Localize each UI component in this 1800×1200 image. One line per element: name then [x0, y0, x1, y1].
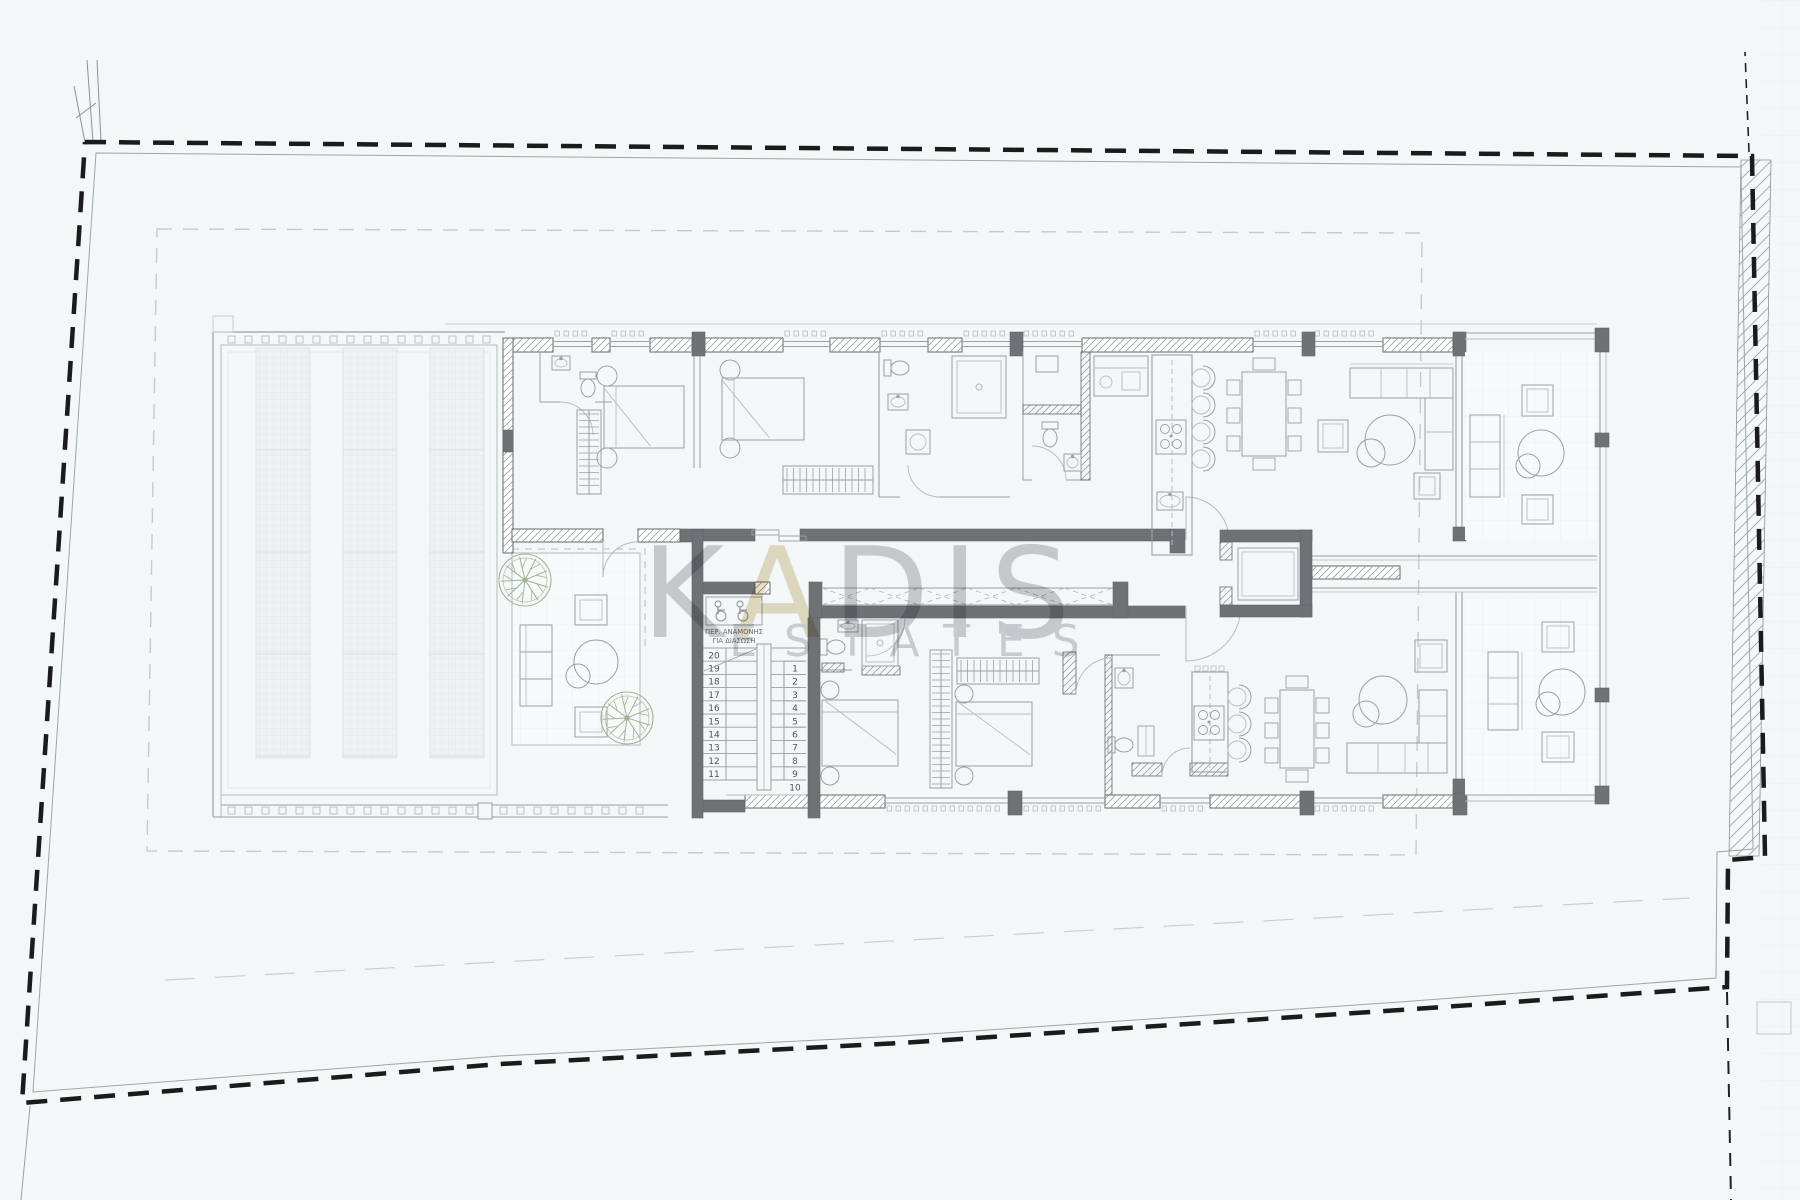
- svg-text:13: 13: [708, 744, 719, 754]
- svg-text:6: 6: [792, 731, 798, 741]
- patio-terrace: [499, 548, 653, 745]
- svg-text:7: 7: [792, 744, 798, 754]
- svg-text:18: 18: [708, 678, 720, 688]
- svg-text:17: 17: [708, 691, 719, 701]
- svg-text:15: 15: [708, 717, 719, 727]
- watermark-subtitle: ESTATES: [729, 616, 1106, 667]
- svg-text:11: 11: [708, 770, 719, 780]
- svg-text:10: 10: [789, 783, 801, 793]
- svg-text:3: 3: [792, 691, 798, 701]
- svg-text:14: 14: [708, 731, 720, 741]
- svg-text:16: 16: [708, 704, 720, 714]
- brand-watermark: KADIS ESTATES: [642, 520, 1107, 667]
- floor-plan-canvas: ΠΕΡ. ΑΝΑΜΟΝΗΣΓΙΑ ΔΙΑΣΩΣΗ2019181716151413…: [0, 0, 1800, 1200]
- svg-text:9: 9: [792, 770, 798, 780]
- svg-text:4: 4: [792, 704, 798, 714]
- svg-text:8: 8: [792, 757, 798, 767]
- svg-text:2: 2: [792, 678, 798, 688]
- svg-text:12: 12: [708, 757, 719, 767]
- svg-text:5: 5: [792, 717, 798, 727]
